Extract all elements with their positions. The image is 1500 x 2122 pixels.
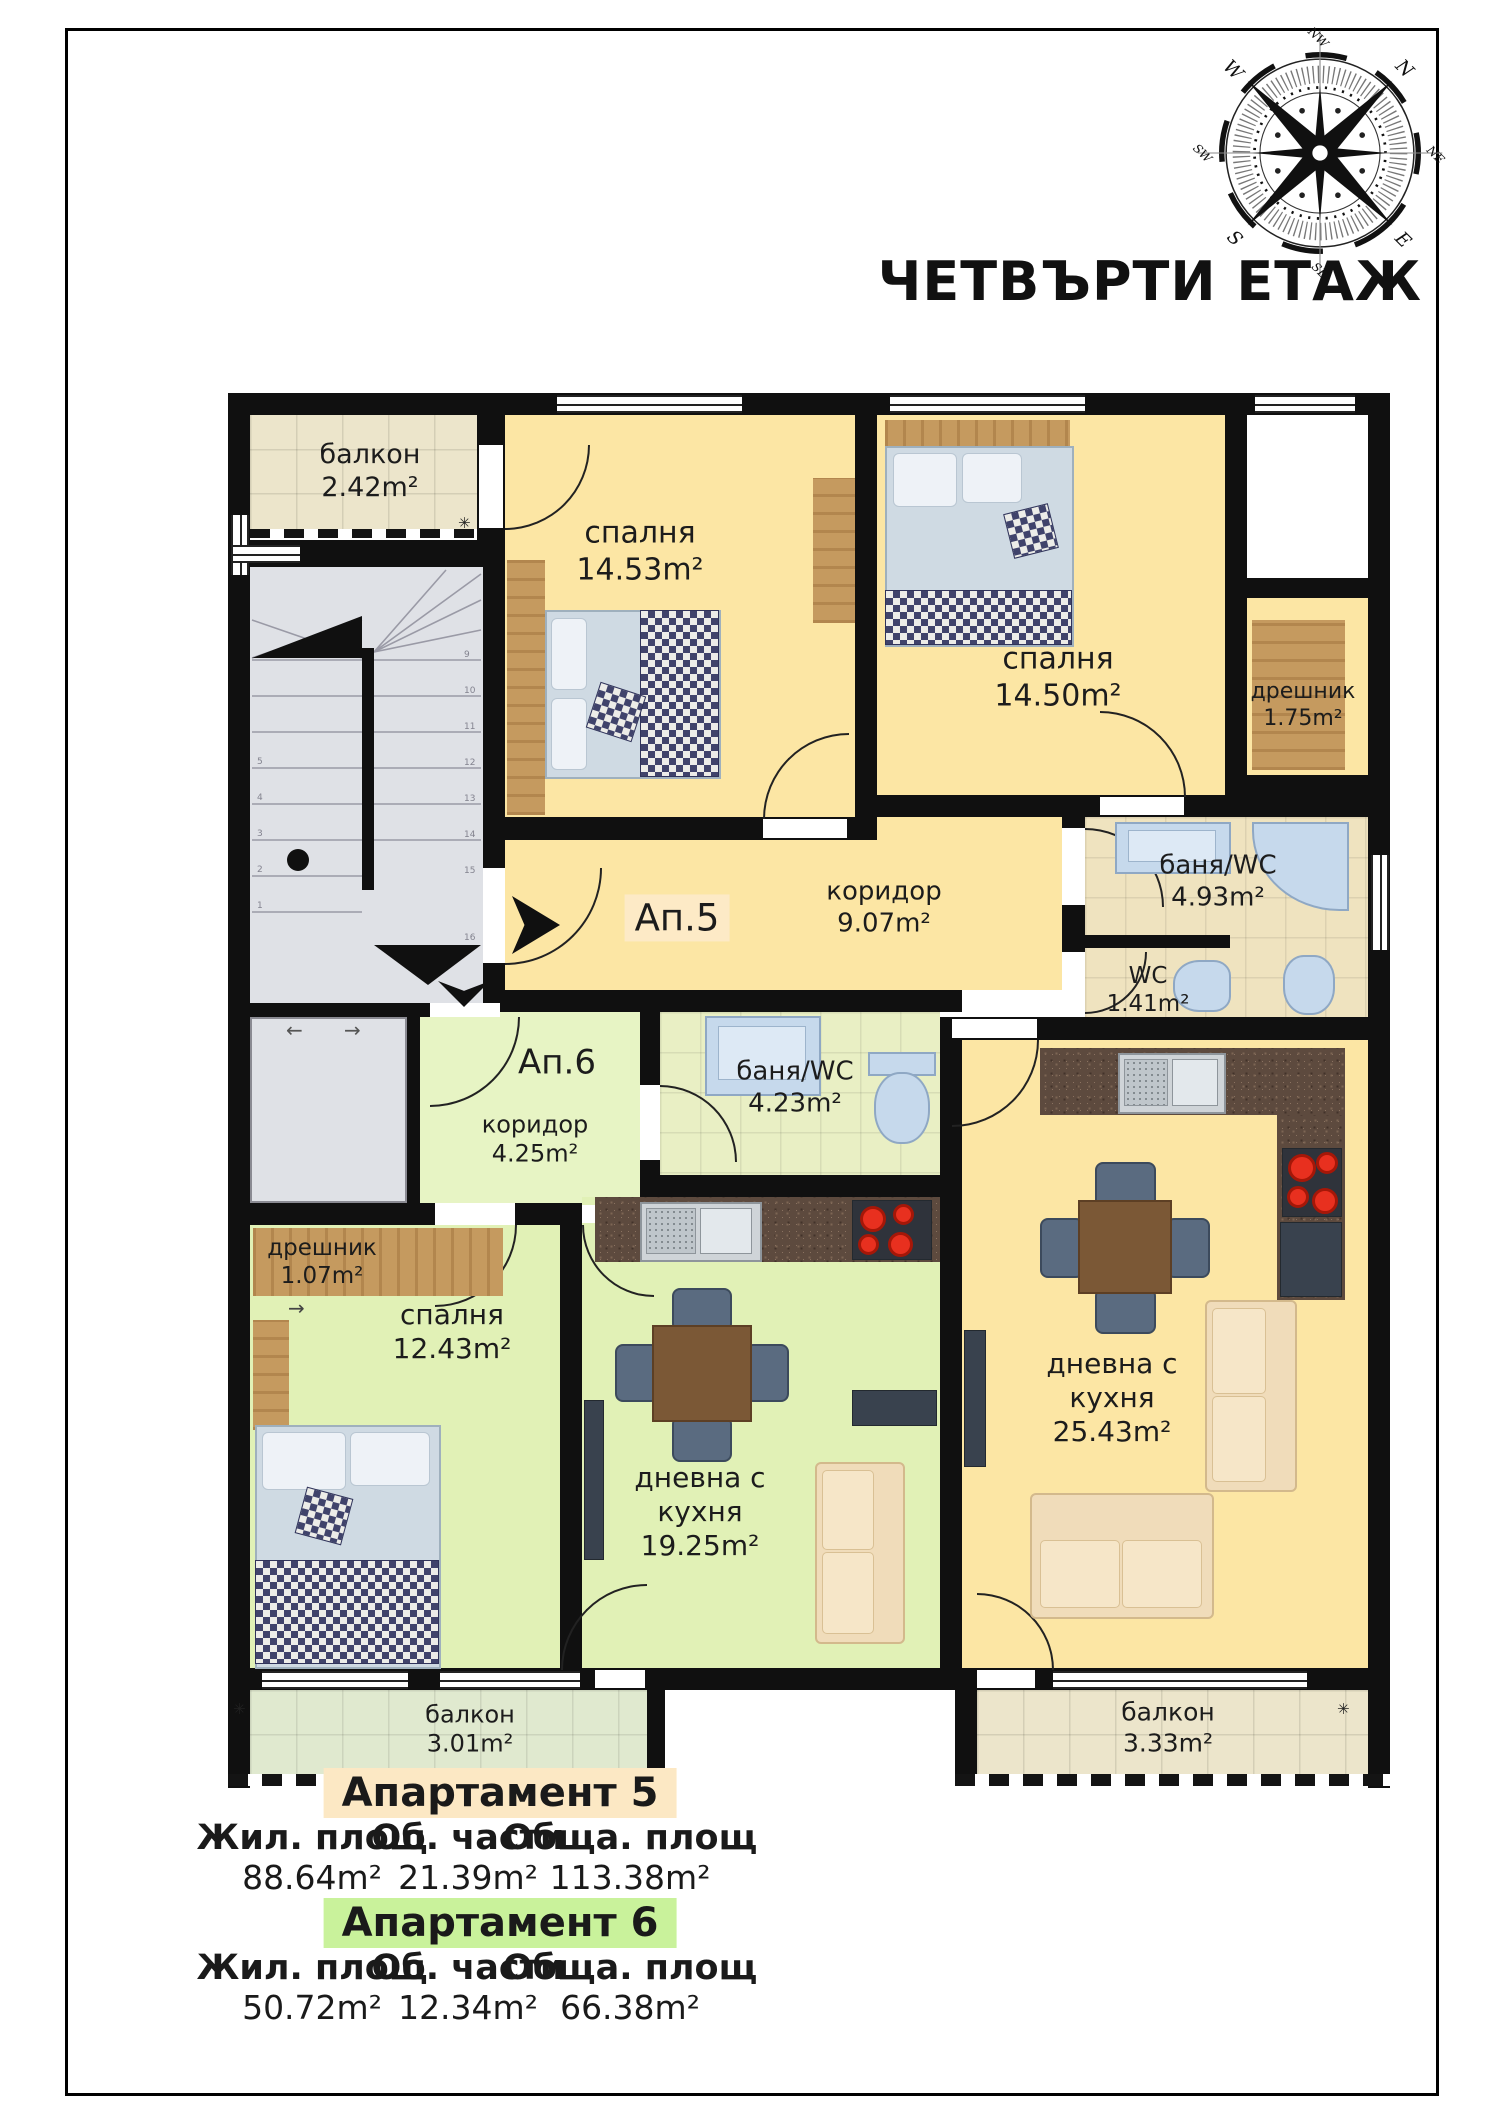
staircase: 1 2 3 4 5 9 10 11 12 13 14 15 16: [250, 560, 483, 1006]
legend-ap6-col3-header: Обща. площ: [503, 1948, 758, 1988]
svg-text:16: 16: [464, 933, 476, 943]
room-label-living-a5: дневна скухня25.43m²: [1046, 1347, 1177, 1449]
elevator-floor: [250, 1017, 407, 1203]
wardrobe-bedroom-a5-1: [813, 478, 855, 623]
legend-ap5-col3-value: 113.38m²: [550, 1858, 711, 1897]
room-label-bedroom-a5-2: спалня14.50m²: [994, 641, 1121, 714]
elevator-door-arrow-right-icon: →: [344, 1018, 361, 1042]
cabinet-a6: [852, 1390, 937, 1426]
elevator-door-arrow-left-icon: ←: [286, 1018, 303, 1042]
vent-icon-balcony-a6: ✳: [233, 1700, 246, 1718]
legend-ap6-title: Апартамент 6: [324, 1898, 677, 1948]
compass-label-w: W: [1219, 56, 1249, 86]
room-label-closet-a5: дрешник1.75m²: [1251, 679, 1356, 733]
svg-text:15: 15: [464, 866, 475, 876]
room-label-corridor-a6: коридор4.25m²: [482, 1111, 589, 1170]
svg-text:9: 9: [464, 650, 470, 660]
legend-ap6-col1-value: 50.72m²: [242, 1988, 382, 2027]
svg-text:11: 11: [464, 722, 475, 732]
compass-label-n: N: [1390, 55, 1418, 83]
compass-label-ne: NE: [1423, 142, 1447, 166]
legend-ap6-col2-value: 12.34m²: [398, 1988, 538, 2027]
legend-ap5-col1-value: 88.64m²: [242, 1858, 382, 1897]
compass-label-sw: SW: [1190, 141, 1216, 167]
room-label-living-a6: дневна скухня19.25m²: [634, 1461, 765, 1563]
room-label-balcony-a5: балкон3.33m²: [1121, 1698, 1214, 1759]
vent-icon-balcony-a5: ✳: [1337, 1700, 1350, 1718]
legend-ap6-col3-value: 66.38m²: [560, 1988, 700, 2027]
compass-label-nw: NW: [1304, 24, 1332, 52]
room-label-closet-a6: дрешник1.07m²: [267, 1234, 377, 1290]
apartment-label-ap5: Ап.5: [625, 894, 730, 941]
svg-text:14: 14: [464, 830, 476, 840]
tv-stand-a5: [964, 1330, 986, 1467]
svg-text:12: 12: [464, 758, 475, 768]
room-label-bath-a6: баня/WC4.23m²: [736, 1056, 853, 1119]
svg-text:5: 5: [257, 757, 263, 767]
room-label-bath-a5: баня/WC4.93m²: [1159, 850, 1276, 913]
room-label-bedroom-a6: спалня12.43m²: [393, 1298, 512, 1366]
legend-ap5-col3-header: Обща. площ: [503, 1818, 758, 1858]
shaft-room-floor: [1247, 415, 1368, 578]
tv-stand-a6: [584, 1400, 604, 1560]
compass-label-se: SE: [1309, 260, 1331, 282]
svg-text:3: 3: [257, 829, 263, 839]
room-label-wc-a5: WC1.41m²: [1107, 962, 1190, 1018]
floor-plan-page: ЧЕТВЪРТИ ЕТАЖ: [0, 0, 1500, 2122]
svg-text:2: 2: [257, 865, 263, 875]
room-label-bedroom-a5-1: спалня14.53m²: [576, 515, 703, 588]
svg-text:13: 13: [464, 794, 475, 804]
legend-ap5-title: Апартамент 5: [324, 1768, 677, 1818]
compass-label-s: S: [1222, 227, 1246, 251]
svg-text:1: 1: [257, 901, 263, 911]
legend-ap5-col2-value: 21.39m²: [398, 1858, 538, 1897]
compass-rose-icon: N NE E SE S SW W NW: [1185, 22, 1455, 284]
room-label-corridor-a5: коридор9.07m²: [826, 876, 941, 939]
room-label-balcony-top: балкон2.42m²: [320, 439, 421, 505]
svg-text:10: 10: [464, 686, 476, 696]
room-label-balcony-a6: балкон3.01m²: [425, 1701, 515, 1760]
closet-a6-arrow-icon: →: [288, 1296, 305, 1320]
vent-icon-balcony-top: ✳: [458, 514, 471, 532]
corridor-a5-floor2: [877, 817, 1062, 840]
apartment-label-ap6: Ап.6: [518, 1042, 596, 1083]
compass-label-e: E: [1390, 227, 1415, 252]
svg-text:4: 4: [257, 793, 263, 803]
